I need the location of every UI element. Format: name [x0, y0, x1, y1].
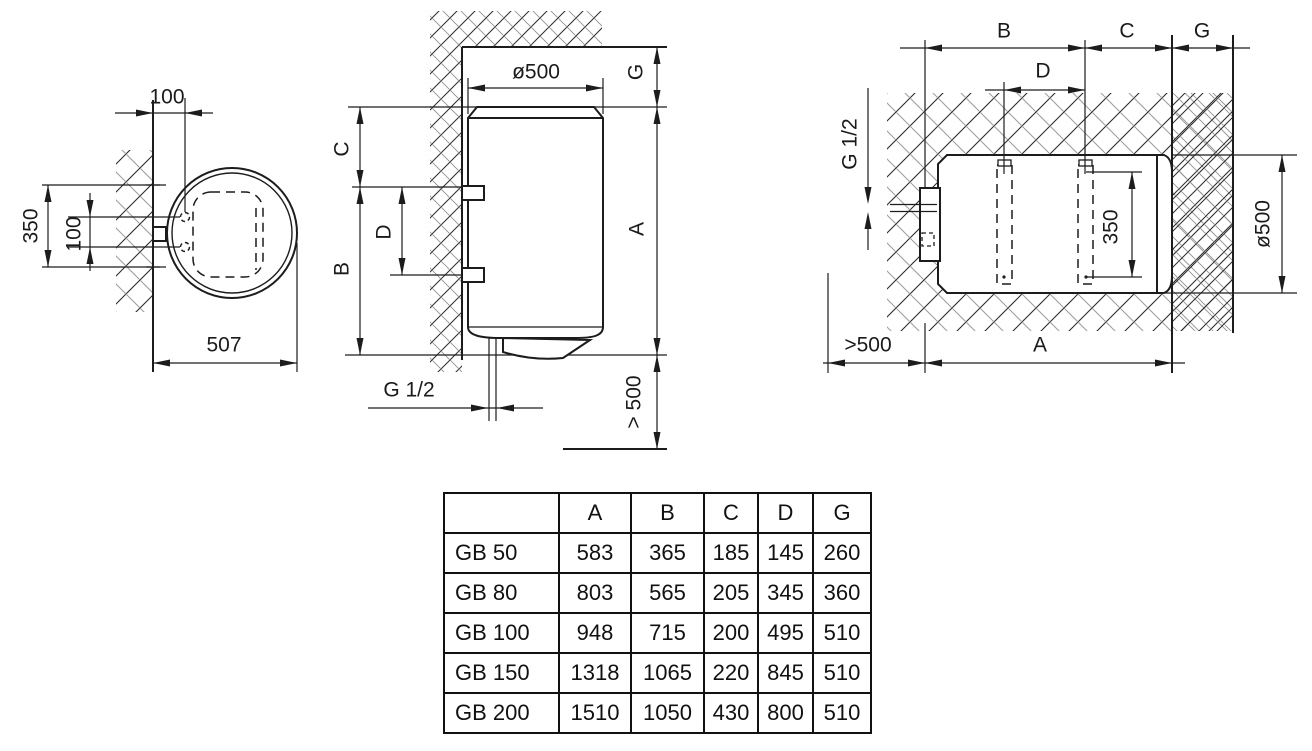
dim-label-350: 350 [20, 208, 43, 243]
dim-label-g: G [625, 64, 648, 80]
value-cell: 205 [704, 573, 758, 613]
dim-label-a: A [626, 222, 649, 236]
table-header-cell [444, 493, 559, 533]
table-header-cell: B [631, 493, 704, 533]
model-cell: GB 150 [444, 653, 559, 693]
dim-label-507: 507 [206, 334, 241, 357]
wall-bracket-lower [462, 268, 484, 282]
value-cell: 495 [758, 613, 813, 653]
dim-label-c: C [331, 141, 354, 156]
bottom-flange [503, 338, 590, 359]
wall-bracket [153, 227, 166, 241]
dim-label-a: A [1033, 334, 1047, 357]
dim-label-b: B [331, 262, 354, 276]
table-header-row: A B C D G [444, 493, 871, 533]
side-wall-hatch [1172, 93, 1233, 331]
model-cell: GB 100 [444, 613, 559, 653]
ceiling-hatch [430, 11, 602, 47]
pipe-thread-label: G 1/2 [383, 379, 434, 402]
dim-label-diameter: ø500 [1252, 200, 1275, 248]
heater-body [462, 107, 603, 421]
value-cell: 583 [559, 533, 631, 573]
table-header-cell: G [813, 493, 871, 533]
table-header-cell: A [559, 493, 631, 533]
value-cell: 510 [813, 693, 871, 733]
table-row: GB 150 1318 1065 220 845 510 [444, 653, 871, 693]
model-cell: GB 200 [444, 693, 559, 733]
model-cell: GB 80 [444, 573, 559, 613]
value-cell: 803 [559, 573, 631, 613]
front-view: 100 350 100 507 [20, 86, 298, 373]
end-cap [920, 188, 940, 261]
value-cell: 800 [758, 693, 813, 733]
value-cell: 345 [758, 573, 813, 613]
value-cell: 715 [631, 613, 704, 653]
value-cell: 365 [631, 533, 704, 573]
table-row: GB 200 1510 1050 430 800 510 [444, 693, 871, 733]
dim-label-bottom-clearance: > 500 [623, 375, 646, 428]
value-cell: 845 [758, 653, 813, 693]
value-cell: 360 [813, 573, 871, 613]
value-cell: 1318 [559, 653, 631, 693]
pipe-thread-label: G 1/2 [839, 118, 862, 169]
table-row: GB 100 948 715 200 495 510 [444, 613, 871, 653]
dim-label-g: G [1194, 20, 1210, 43]
dim-label-diameter: ø500 [512, 61, 560, 84]
side-view: ø500 G A > 500 C B D G 1/ [331, 11, 668, 449]
value-cell: 200 [704, 613, 758, 653]
value-cell: 565 [631, 573, 704, 613]
dim-label-d: D [373, 224, 396, 239]
horizontal-view: B C G D G 1/2 350 ø500 [823, 20, 1297, 374]
dimension-table: A B C D G GB 50 583 365 185 145 260 GB 8… [443, 492, 872, 734]
tank-outline [167, 168, 297, 298]
dimensional-drawing-page: 100 350 100 507 [0, 0, 1312, 751]
value-cell: 430 [704, 693, 758, 733]
value-cell: 260 [813, 533, 871, 573]
model-cell: GB 50 [444, 533, 559, 573]
table-row: GB 50 583 365 185 145 260 [444, 533, 871, 573]
value-cell: 220 [704, 653, 758, 693]
dim-label-side-clearance: >500 [844, 334, 891, 357]
dim-label-port-100: 100 [63, 216, 86, 251]
value-cell: 1050 [631, 693, 704, 733]
wall-bracket-upper [462, 186, 484, 200]
dim-label-350: 350 [1100, 209, 1123, 244]
dim-label-b: B [997, 20, 1011, 43]
value-cell: 510 [813, 613, 871, 653]
table-header-cell: D [758, 493, 813, 533]
value-cell: 185 [704, 533, 758, 573]
dim-label-c: C [1119, 20, 1134, 43]
dim-label-d: D [1035, 60, 1050, 83]
table-row: GB 80 803 565 205 345 360 [444, 573, 871, 613]
value-cell: 510 [813, 653, 871, 693]
wall-hatch [430, 47, 462, 372]
value-cell: 1510 [559, 693, 631, 733]
dim-label-offset-100: 100 [149, 86, 184, 109]
value-cell: 948 [559, 613, 631, 653]
value-cell: 1065 [631, 653, 704, 693]
table-header-cell: C [704, 493, 758, 533]
wall-hatch [116, 150, 153, 312]
value-cell: 145 [758, 533, 813, 573]
